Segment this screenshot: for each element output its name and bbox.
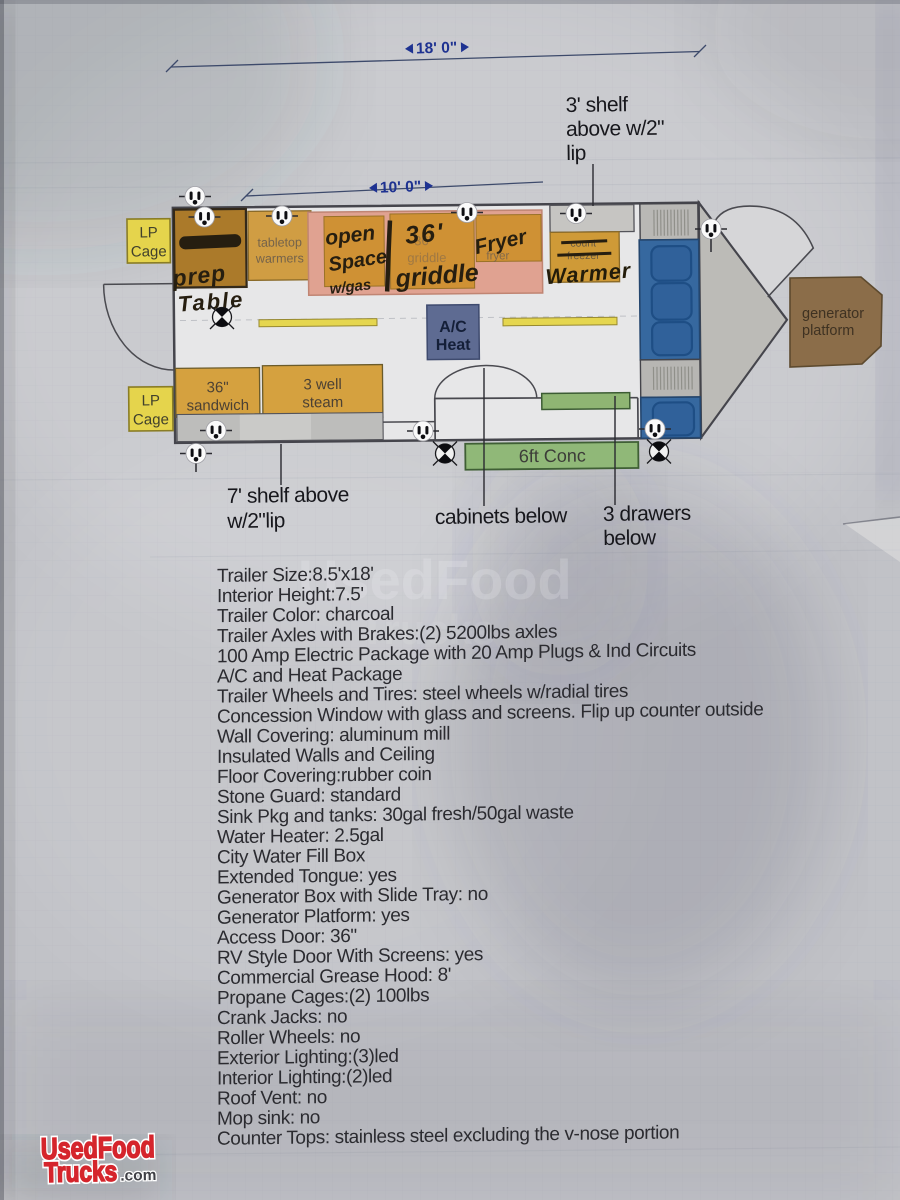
svg-text:18' 0": 18' 0" <box>416 39 458 57</box>
svg-text:platform: platform <box>802 323 854 339</box>
svg-text:w/2"lip: w/2"lip <box>226 509 285 533</box>
svg-text:Cage: Cage <box>133 411 169 428</box>
svg-text:3' shelf: 3' shelf <box>565 93 628 117</box>
svg-text:3 well: 3 well <box>303 376 342 393</box>
svg-text:generator: generator <box>802 306 864 322</box>
svg-text:above w/2": above w/2" <box>566 117 665 141</box>
svg-text:36': 36' <box>404 218 446 250</box>
svg-text:A/C: A/C <box>439 319 467 336</box>
svg-text:below: below <box>603 526 657 550</box>
svg-text:sandwich: sandwich <box>186 397 249 415</box>
svg-text:10' 0": 10' 0" <box>380 178 422 196</box>
svg-text:7' shelf above: 7' shelf above <box>227 483 349 508</box>
svg-text:Mop sink: no: Mop sink: no <box>217 1107 320 1129</box>
svg-text:36": 36" <box>207 379 229 396</box>
svg-text:steam: steam <box>302 394 343 411</box>
svg-text:LP: LP <box>139 224 158 241</box>
svg-text:Heat: Heat <box>436 337 472 354</box>
svg-text:3 drawers: 3 drawers <box>603 502 691 526</box>
svg-text:.com: .com <box>120 1167 156 1185</box>
svg-text:warmers: warmers <box>255 251 304 265</box>
svg-text:6ft Conc: 6ft Conc <box>519 446 586 467</box>
svg-text:cabinets below: cabinets below <box>435 504 569 529</box>
svg-text:Trucks: Trucks <box>44 1156 118 1188</box>
svg-text:LP: LP <box>141 392 160 409</box>
svg-text:Propane Cages:(2) 100lbs: Propane Cages:(2) 100lbs <box>217 985 429 1009</box>
svg-text:Roof Vent: no: Roof Vent: no <box>217 1087 327 1110</box>
svg-text:Generator Platform: yes: Generator Platform: yes <box>217 905 409 929</box>
svg-text:lip: lip <box>566 142 586 165</box>
svg-text:Interior Lighting:(2)led: Interior Lighting:(2)led <box>217 1066 392 1089</box>
svg-text:tabletop: tabletop <box>257 235 302 249</box>
svg-text:Table: Table <box>177 287 245 317</box>
svg-text:Cage: Cage <box>131 243 167 260</box>
